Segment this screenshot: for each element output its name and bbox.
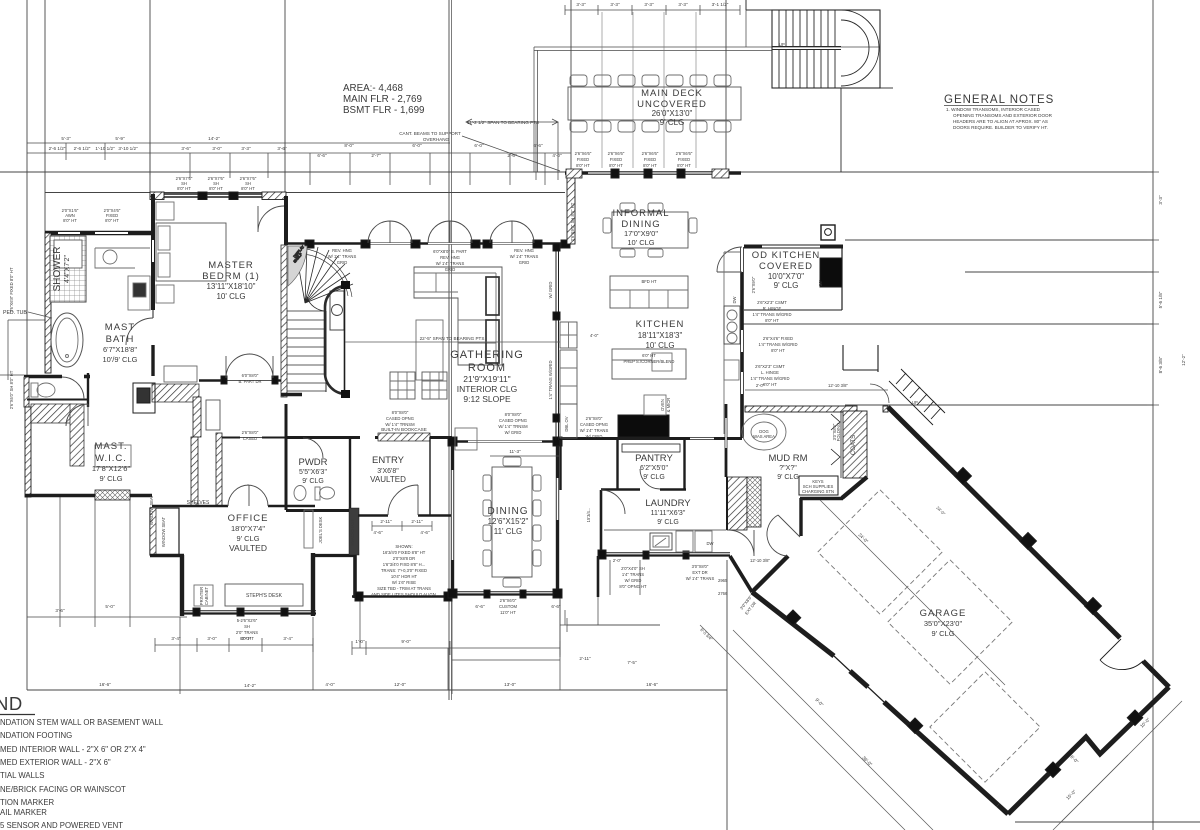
svg-text:10' CLG: 10' CLG <box>216 292 245 301</box>
svg-text:CASED OPNG: CASED OPNG <box>386 416 414 421</box>
svg-text:4'4"X7'2": 4'4"X7'2" <box>64 255 71 283</box>
svg-text:2965: 2965 <box>718 578 728 583</box>
svg-text:2'6"X8'0": 2'6"X8'0" <box>586 416 603 421</box>
svg-text:MAIN DECK: MAIN DECK <box>641 88 703 99</box>
svg-text:SIZE TBD - TRIM AT TRANS: SIZE TBD - TRIM AT TRANS <box>377 586 431 591</box>
svg-text:HEADERS ARE TO ALIGN AT APROX.: HEADERS ARE TO ALIGN AT APROX. 80" AS <box>953 119 1048 124</box>
svg-text:ND: ND <box>0 693 23 714</box>
svg-text:PREP S./CORNER/BLEND: PREP S./CORNER/BLEND <box>624 359 675 364</box>
svg-text:2'0"X8'8 DR: 2'0"X8'8 DR <box>393 556 415 561</box>
svg-text:8'0" HT: 8'0" HT <box>763 382 777 387</box>
svg-text:FIXED: FIXED <box>577 157 589 162</box>
svg-text:3'-3": 3'-3" <box>678 2 688 7</box>
svg-text:6'-6": 6'-6" <box>533 143 543 148</box>
svg-text:W/ GRID: W/ GRID <box>548 282 553 299</box>
svg-text:NDATION STEM WALL OR BASEMENT: NDATION STEM WALL OR BASEMENT WALL <box>0 718 164 727</box>
svg-text:12'6"X15'2": 12'6"X15'2" <box>488 517 529 526</box>
svg-text:11'11"X6'3": 11'11"X6'3" <box>651 510 686 517</box>
svg-text:KITCHEN: KITCHEN <box>636 319 685 330</box>
svg-text:OD KITCHEN: OD KITCHEN <box>752 250 821 261</box>
svg-text:3'-3": 3'-3" <box>1158 195 1163 205</box>
svg-text:6'0"X8'0" B. PART: 6'0"X8'0" B. PART <box>433 249 467 254</box>
svg-text:3'-1 1/2": 3'-1 1/2" <box>712 2 729 7</box>
svg-text:2'0"X4'0" SH: 2'0"X4'0" SH <box>621 566 645 571</box>
svg-text:18'11"X18'3": 18'11"X18'3" <box>638 331 683 340</box>
svg-text:2'6"X6'8" FIXED 8'0" HT: 2'6"X6'8" FIXED 8'0" HT <box>9 267 14 312</box>
svg-text:13'-0": 13'-0" <box>504 682 516 687</box>
svg-text:16'-6": 16'-6" <box>99 682 111 687</box>
svg-text:3'-6": 3'-6" <box>55 608 65 613</box>
svg-text:2'-11": 2'-11" <box>579 656 591 661</box>
svg-text:21'9"X19'11": 21'9"X19'11" <box>463 374 510 384</box>
svg-text:GRID: GRID <box>519 260 529 265</box>
svg-text:CANT. BEAMS TO SUPPORT: CANT. BEAMS TO SUPPORT <box>399 131 461 136</box>
svg-text:MAST: MAST <box>105 322 135 333</box>
svg-text:5'-6 1/8": 5'-6 1/8" <box>1158 291 1163 308</box>
svg-text:9' CLG: 9' CLG <box>931 629 954 638</box>
svg-text:14'-2": 14'-2" <box>208 136 220 141</box>
svg-text:MAST.: MAST. <box>95 441 128 452</box>
svg-text:15'3/4...: 15'3/4... <box>586 508 591 523</box>
svg-text:8'-6 3/8": 8'-6 3/8" <box>1158 356 1163 373</box>
svg-text:SHOWN:: SHOWN: <box>395 544 412 549</box>
svg-text:W/ GRID: W/ GRID <box>625 578 642 583</box>
svg-text:3'-3": 3'-3" <box>644 2 654 7</box>
svg-text:6'0"X8'0": 6'0"X8'0" <box>242 373 259 378</box>
svg-text:4'-6": 4'-6" <box>420 530 430 535</box>
svg-text:2'6"X9'0": 2'6"X9'0" <box>751 276 756 293</box>
svg-text:INTERIOR CLG: INTERIOR CLG <box>457 384 517 394</box>
svg-text:DINING: DINING <box>488 506 529 517</box>
svg-text:10'4" HDR HT: 10'4" HDR HT <box>391 574 418 579</box>
svg-text:L. HINGE: L. HINGE <box>761 370 779 375</box>
svg-text:2'-0": 2'-0" <box>613 558 622 563</box>
svg-text:2766: 2766 <box>718 591 728 596</box>
svg-text:9' CLG: 9' CLG <box>99 474 122 483</box>
svg-text:PWDR: PWDR <box>298 457 327 468</box>
svg-text:WINDOW SEAT: WINDOW SEAT <box>149 494 154 525</box>
svg-text:COVERED: COVERED <box>759 261 813 272</box>
svg-text:9' CLG: 9' CLG <box>657 519 679 526</box>
svg-text:3'-3": 3'-3" <box>610 2 620 7</box>
svg-text:1'-10 1/2": 1'-10 1/2" <box>95 146 115 151</box>
svg-text:NDATION FOOTING: NDATION FOOTING <box>0 731 72 740</box>
svg-text:OVERHANG: OVERHANG <box>423 137 450 142</box>
svg-text:8'0" HT: 8'0" HT <box>677 163 691 168</box>
svg-text:CABINET: CABINET <box>204 586 209 605</box>
svg-text:MUD RM: MUD RM <box>768 453 807 464</box>
svg-text:WINDOW SEAT: WINDOW SEAT <box>161 516 166 547</box>
svg-text:FIXED: FIXED <box>644 157 656 162</box>
svg-text:9:12 SLOPE: 9:12 SLOPE <box>463 394 511 404</box>
svg-text:GARAGE: GARAGE <box>920 608 967 619</box>
svg-text:11'-2 1/2" SPAN TO BEARING PTS: 11'-2 1/2" SPAN TO BEARING PTS <box>467 120 539 125</box>
svg-text:SH: SH <box>244 624 250 629</box>
svg-text:REV. HNG: REV. HNG <box>514 248 534 253</box>
svg-text:6'-6": 6'-6" <box>475 604 485 609</box>
svg-text:11'-3": 11'-3" <box>509 449 521 454</box>
svg-text:12'-10 3/8": 12'-10 3/8" <box>828 383 848 388</box>
svg-text:REV. HNG: REV. HNG <box>440 255 460 260</box>
svg-text:9'-0": 9'-0" <box>401 639 411 644</box>
svg-text:BFD HT: BFD HT <box>641 279 657 284</box>
svg-text:W/ 1'4" TRANS: W/ 1'4" TRANS <box>436 261 465 266</box>
svg-text:JOEL'S DESK: JOEL'S DESK <box>318 516 323 543</box>
svg-text:6'-0": 6'-0" <box>474 143 484 148</box>
svg-text:GENERAL NOTES: GENERAL NOTES <box>944 94 1054 106</box>
svg-text:CASED OPNG: CASED OPNG <box>499 418 527 423</box>
svg-text:MED EXTERIOR WALL - 2"X 6": MED EXTERIOR WALL - 2"X 6" <box>0 758 111 767</box>
svg-text:WAS AREA: WAS AREA <box>753 434 775 439</box>
svg-text:W/ 1'4" TRNSM: W/ 1'4" TRNSM <box>498 424 528 429</box>
svg-text:GATHERING: GATHERING <box>450 349 524 361</box>
svg-text:8'0" HT: 8'0" HT <box>643 163 657 168</box>
svg-text:CUSTOM: CUSTOM <box>499 604 518 609</box>
svg-text:4'-0": 4'-0" <box>325 682 335 687</box>
svg-text:5-2'6"X2'6": 5-2'6"X2'6" <box>237 618 258 623</box>
svg-text:2'6"X2'3" CSMT: 2'6"X2'3" CSMT <box>757 300 787 305</box>
svg-text:DW: DW <box>732 296 737 303</box>
svg-text:HVAC/CHASE: HVAC/CHASE <box>350 518 355 545</box>
svg-text:12'-2": 12'-2" <box>1181 354 1186 366</box>
svg-text:4'-0": 4'-0" <box>552 153 562 158</box>
svg-text:1'6"3/4'0 FIXD 8'8" H...: 1'6"3/4'0 FIXD 8'8" H... <box>383 562 425 567</box>
svg-text:8'0" HT: 8'0" HT <box>765 318 779 323</box>
svg-text:W/ GRID: W/ GRID <box>505 430 522 435</box>
svg-text:9' CLG: 9' CLG <box>774 281 799 290</box>
svg-text:W/ 1'4" TRANS: W/ 1'4" TRANS <box>328 254 357 259</box>
svg-text:DW: DW <box>707 541 714 546</box>
svg-text:26'0"X13'0": 26'0"X13'0" <box>652 109 693 118</box>
svg-text:AND SIDE LITES SHOULD ALIGN.: AND SIDE LITES SHOULD ALIGN. <box>371 592 437 597</box>
svg-text:MED INTERIOR WALL - 2"X 6" OR: MED INTERIOR WALL - 2"X 6" OR 2"X 4" <box>0 745 146 754</box>
svg-text:MASTER: MASTER <box>208 260 254 271</box>
svg-text:W/ 1'4" TRANS: W/ 1'4" TRANS <box>580 428 609 433</box>
svg-text:11'0" HT: 11'0" HT <box>500 610 516 615</box>
svg-text:COATS: COATS <box>851 435 857 455</box>
svg-text:EXT DR: EXT DR <box>692 570 707 575</box>
svg-text:8'-0": 8'-0" <box>344 143 354 148</box>
svg-text:3'-3": 3'-3" <box>576 2 586 7</box>
svg-text:8'0" HT: 8'0" HT <box>177 186 191 191</box>
svg-text:8'0" HT: 8'0" HT <box>241 186 255 191</box>
svg-text:W/ 1'6" RISE: W/ 1'6" RISE <box>392 580 416 585</box>
svg-text:R. HINGE: R. HINGE <box>763 306 782 311</box>
svg-text:FIXED: FIXED <box>678 157 690 162</box>
svg-text:DBL OV: DBL OV <box>564 416 569 431</box>
svg-text:FIXED: FIXED <box>610 157 622 162</box>
svg-text:2'6"X6'6": 2'6"X6'6" <box>642 151 659 156</box>
svg-text:UP: UP <box>779 42 785 47</box>
svg-text:11' CLG: 11' CLG <box>494 527 523 536</box>
svg-text:W.I.C.: W.I.C. <box>95 453 127 464</box>
svg-text:3'-4": 3'-4" <box>283 636 293 641</box>
svg-text:CASED OPNG: CASED OPNG <box>580 422 608 427</box>
svg-text:CHARGING STN: CHARGING STN <box>802 489 834 494</box>
svg-text:?"X?": ?"X?" <box>779 465 797 472</box>
svg-text:2'-6 1/2": 2'-6 1/2" <box>74 146 91 151</box>
svg-text:8'0" HT: 8'0" HT <box>609 163 623 168</box>
svg-text:1'4" TRANS W/GRID: 1'4" TRANS W/GRID <box>753 312 792 317</box>
svg-text:DOORS REQUIRE. BUILDER TO VER: DOORS REQUIRE. BUILDER TO VERIFY HT. <box>953 125 1048 130</box>
svg-text:W/ 1'4" TRANS: W/ 1'4" TRANS <box>510 254 539 259</box>
svg-text:2'0" TRANS: 2'0" TRANS <box>236 630 258 635</box>
svg-text:BEDRM (1): BEDRM (1) <box>202 271 260 282</box>
svg-text:INFORMAL: INFORMAL <box>612 208 669 219</box>
svg-text:MAIN FLR - 2,769: MAIN FLR - 2,769 <box>343 94 422 105</box>
svg-text:6'2"X5'0": 6'2"X5'0" <box>640 465 668 472</box>
svg-text:12'-0": 12'-0" <box>394 682 406 687</box>
svg-text:VAULTED: VAULTED <box>229 543 267 553</box>
svg-text:8'0" HT: 8'0" HT <box>209 186 223 191</box>
svg-text:10'/9' CLG: 10'/9' CLG <box>103 355 138 364</box>
svg-text:9' CLG: 9' CLG <box>777 474 799 481</box>
svg-text:6'-0": 6'-0" <box>412 143 422 148</box>
svg-text:2'6"X6'0": 2'6"X6'0" <box>500 598 517 603</box>
svg-text:6'0" HT: 6'0" HT <box>642 353 656 358</box>
svg-text:OPENING TRANSOMS AND EXTERIOR: OPENING TRANSOMS AND EXTERIOR DOOR <box>953 113 1053 118</box>
svg-text:W/ GRID: W/ GRID <box>586 434 603 439</box>
svg-text:SHELVES: SHELVES <box>187 500 210 506</box>
svg-text:BUILT-IN BOOKCASE: BUILT-IN BOOKCASE <box>381 427 427 432</box>
svg-text:8'0" OPNG HT: 8'0" OPNG HT <box>619 584 647 589</box>
svg-text:8'0"X8'0": 8'0"X8'0" <box>392 410 409 415</box>
svg-text:5'5"X6'3": 5'5"X6'3" <box>299 469 327 476</box>
svg-text:3'X6'8": 3'X6'8" <box>377 468 399 475</box>
svg-text:17'8"X12'6": 17'8"X12'6" <box>92 464 131 473</box>
svg-text:2'6"X2'3" CSMT: 2'6"X2'3" CSMT <box>755 364 785 369</box>
svg-text:3'0"X8'0": 3'0"X8'0" <box>692 564 709 569</box>
svg-text:22'-5" SPAN TO BEARING PTS: 22'-5" SPAN TO BEARING PTS <box>420 336 485 341</box>
svg-text:3'-4": 3'-4" <box>171 636 181 641</box>
svg-text:4'-6": 4'-6" <box>373 530 383 535</box>
svg-text:5'-0": 5'-0" <box>105 604 115 609</box>
svg-text:PED. TUB: PED. TUB <box>3 310 27 316</box>
svg-text:13'11"X18'10": 13'11"X18'10" <box>206 282 255 291</box>
svg-text:2'-7": 2'-7" <box>371 153 381 158</box>
svg-text:1'4" TRANS W/GRID: 1'4" TRANS W/GRID <box>548 361 553 400</box>
svg-text:6'-6": 6'-6" <box>317 153 327 158</box>
svg-text:2'-11": 2'-11" <box>380 519 392 524</box>
svg-text:STEPH'S DESK: STEPH'S DESK <box>246 593 283 599</box>
svg-text:8'0"X8'0": 8'0"X8'0" <box>505 412 522 417</box>
svg-text:GRID: GRID <box>445 267 455 272</box>
svg-text:17'0"X9'0": 17'0"X9'0" <box>624 229 658 238</box>
svg-text:2'-6": 2'-6" <box>507 153 517 158</box>
svg-text:SHOWER: SHOWER <box>52 247 63 292</box>
svg-text:14'-2": 14'-2" <box>244 683 256 688</box>
svg-text:1'-0": 1'-0" <box>355 639 365 644</box>
svg-text:9' CLG: 9' CLG <box>643 474 665 481</box>
svg-text:12'-10 3/8": 12'-10 3/8" <box>750 558 770 563</box>
svg-text:3'-6": 3'-6" <box>277 146 287 151</box>
svg-text:2'-11": 2'-11" <box>411 519 423 524</box>
svg-text:1'4" TRANS W/GRID: 1'4" TRANS W/GRID <box>759 342 798 347</box>
svg-text:1'4" TRANS W/GRID: 1'4" TRANS W/GRID <box>751 376 790 381</box>
svg-text:2'-6 1/2": 2'-6 1/2" <box>49 146 66 151</box>
svg-text:1. WINDOW TRANSOMS, INTERIO: 1. WINDOW TRANSOMS, INTERIOR CASED <box>946 107 1041 112</box>
svg-text:W/ 1'4" TRNSM: W/ 1'4" TRNSM <box>385 422 415 427</box>
svg-text:2'6"X6'0" SH 8'0" HT: 2'6"X6'0" SH 8'0" HT <box>9 370 14 409</box>
svg-text:AIL MARKER: AIL MARKER <box>0 808 47 817</box>
svg-text:10'0"X7'0": 10'0"X7'0" <box>768 272 804 281</box>
svg-text:5'-9": 5'-9" <box>115 136 125 141</box>
svg-text:1'4" TRANS: 1'4" TRANS <box>622 572 644 577</box>
svg-text:5 SENSOR AND POWERED VENT: 5 SENSOR AND POWERED VENT <box>0 821 123 830</box>
svg-text:8'0" HT: 8'0" HT <box>63 218 77 223</box>
svg-text:9' CLG: 9' CLG <box>236 534 259 543</box>
svg-text:9' CLG: 9' CLG <box>302 478 324 485</box>
svg-text:6'-6": 6'-6" <box>551 604 561 609</box>
svg-text:W/ 1'4" TRANS: W/ 1'4" TRANS <box>686 576 715 581</box>
svg-text:3'-10 1/2": 3'-10 1/2" <box>118 146 138 151</box>
svg-text:ROOM: ROOM <box>468 362 506 374</box>
svg-text:OFFICE: OFFICE <box>228 513 269 524</box>
svg-text:3'-6": 3'-6" <box>181 146 191 151</box>
svg-text:16'3/4'0 FIXED 8'8" HT: 16'3/4'0 FIXED 8'8" HT <box>383 550 426 555</box>
svg-text:16'-6": 16'-6" <box>646 682 658 687</box>
svg-text:3'-3": 3'-3" <box>241 146 251 151</box>
svg-text:AREA:- 4,468: AREA:- 4,468 <box>343 83 403 94</box>
svg-text:2'6"X6'6": 2'6"X6'6" <box>676 151 693 156</box>
svg-text:8'0" HT: 8'0" HT <box>576 163 590 168</box>
svg-text:5'-3": 5'-3" <box>61 136 71 141</box>
svg-text:4'-0": 4'-0" <box>590 333 599 338</box>
svg-text:2'6"X8'0": 2'6"X8'0" <box>242 430 259 435</box>
svg-text:2'6"X9'0" SH 8'0" HT: 2'6"X9'0" SH 8'0" HT <box>570 202 575 241</box>
svg-text:NE/BRICK FACING OR WAINSCOT: NE/BRICK FACING OR WAINSCOT <box>0 785 126 794</box>
svg-text:3'-0": 3'-0" <box>207 636 217 641</box>
svg-text:3'-0": 3'-0" <box>212 146 222 151</box>
svg-text:10' CLG: 10' CLG <box>627 238 654 247</box>
svg-text:UP: UP <box>912 400 918 405</box>
svg-text:2'-0": 2'-0" <box>241 636 251 641</box>
svg-text:6'7"X18'8": 6'7"X18'8" <box>103 345 137 354</box>
svg-text:2'-0": 2'-0" <box>756 383 765 388</box>
svg-text:TION MARKER: TION MARKER <box>0 798 55 807</box>
svg-text:10' CLG: 10' CLG <box>645 341 674 350</box>
svg-text:2'6"X6'6": 2'6"X6'6" <box>575 151 592 156</box>
svg-text:PANTRY: PANTRY <box>635 453 673 464</box>
svg-text:BATH: BATH <box>106 334 135 345</box>
svg-text:REV. HNG: REV. HNG <box>332 248 352 253</box>
svg-text:B. PART DR: B. PART DR <box>238 379 261 384</box>
svg-text:2'6"X4'6" FIXED: 2'6"X4'6" FIXED <box>763 336 793 341</box>
svg-text:ENTRY: ENTRY <box>372 455 405 466</box>
svg-text:7'-5": 7'-5" <box>627 660 637 665</box>
svg-text:VAULTED: VAULTED <box>370 475 406 484</box>
svg-text:2'6"X6'6": 2'6"X6'6" <box>608 151 625 156</box>
svg-text:9' CLG: 9' CLG <box>660 118 685 127</box>
svg-text:BSMT FLR - 1,699: BSMT FLR - 1,699 <box>343 105 425 116</box>
svg-text:LAUNDRY: LAUNDRY <box>645 498 691 509</box>
svg-text:FOLDING: FOLDING <box>836 423 841 442</box>
svg-text:8'0" HT: 8'0" HT <box>771 348 785 353</box>
svg-text:OVEN: OVEN <box>660 399 665 411</box>
svg-text:TIAL WALLS: TIAL WALLS <box>0 771 45 780</box>
svg-text:CASED: CASED <box>243 436 257 441</box>
svg-text:18'0"X7'4": 18'0"X7'4" <box>231 524 265 533</box>
svg-text:GRID: GRID <box>337 260 347 265</box>
svg-text:36": 36" <box>818 279 823 286</box>
svg-text:& MICR: & MICR <box>666 398 671 413</box>
svg-text:TRANS: 7'+0,3'0" FIXED: TRANS: 7'+0,3'0" FIXED <box>381 568 427 573</box>
svg-text:8'0" HT: 8'0" HT <box>105 218 119 223</box>
